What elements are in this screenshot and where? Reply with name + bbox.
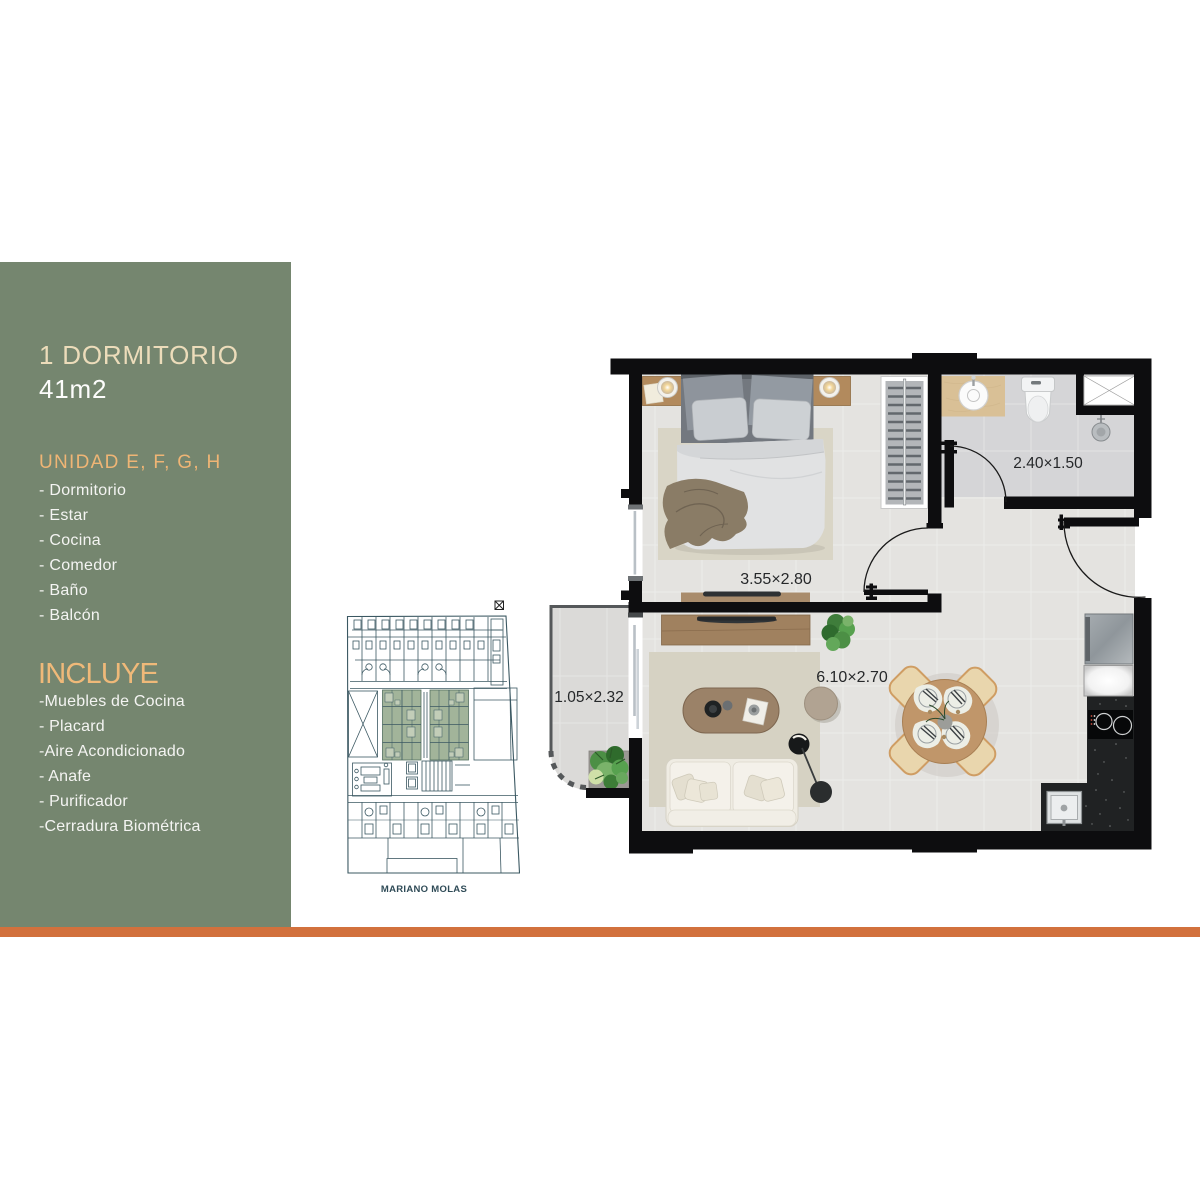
svg-text:6.10×2.70: 6.10×2.70	[816, 669, 888, 686]
svg-text:1.05×2.32: 1.05×2.32	[554, 689, 623, 706]
svg-text:MARIANO MOLAS: MARIANO MOLAS	[381, 884, 467, 895]
svg-text:2.40×1.50: 2.40×1.50	[1013, 455, 1083, 472]
svg-text:3.55×2.80: 3.55×2.80	[740, 571, 812, 588]
